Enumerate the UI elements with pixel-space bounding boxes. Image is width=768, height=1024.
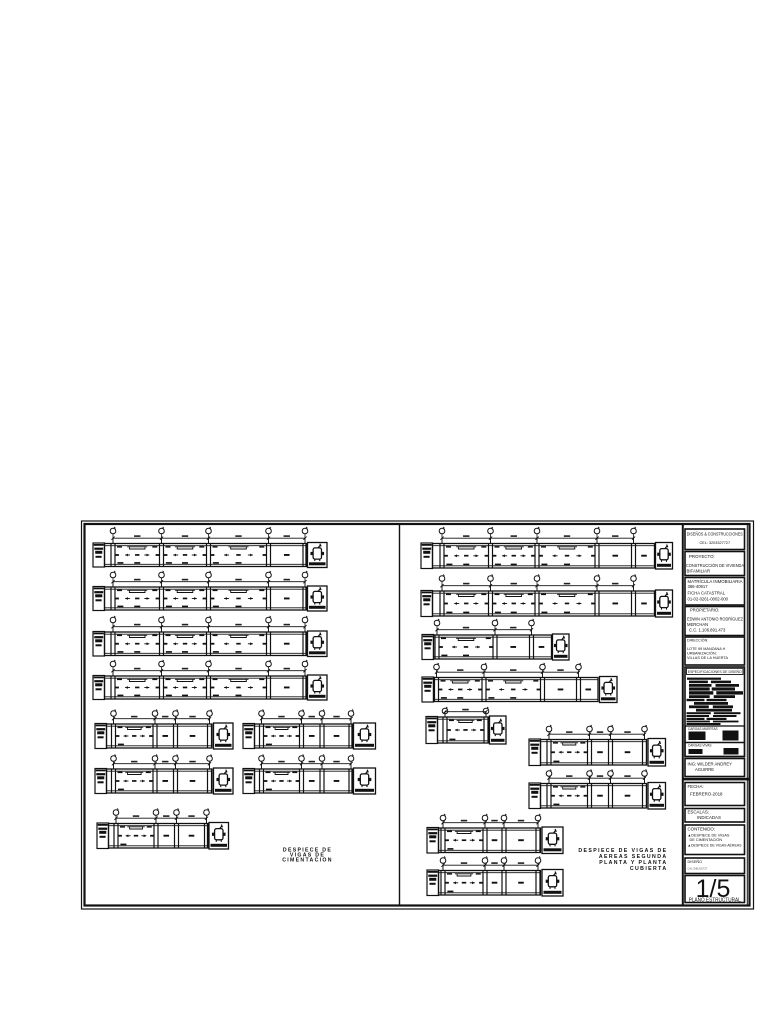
- svg-text:AGUIRRE: AGUIRRE: [695, 767, 714, 772]
- svg-text:▲DESPIECE DE VIGAS: ▲DESPIECE DE VIGAS: [688, 834, 730, 838]
- svg-text:CARGAS MUERTAS: CARGAS MUERTAS: [688, 727, 718, 731]
- svg-text:CIMENTACION: CIMENTACION: [282, 858, 333, 864]
- svg-text:PROYECTO:: PROYECTO:: [689, 554, 715, 559]
- svg-text:C.C. 1.106.891.473: C.C. 1.106.891.473: [689, 628, 726, 633]
- svg-text:DE CIMENTACIÓN: DE CIMENTACIÓN: [690, 837, 723, 842]
- svg-text:CEL: 3203327727: CEL: 3203327727: [699, 541, 730, 545]
- svg-text:EDWIN ANTONIO RODRÍGUEZ: EDWIN ANTONIO RODRÍGUEZ: [687, 617, 743, 622]
- svg-text:URBANIZACIÓN:: URBANIZACIÓN:: [687, 651, 717, 656]
- svg-text:ING: WILDER ANDREY: ING: WILDER ANDREY: [688, 762, 733, 767]
- svg-text:CAL-SIELNO727: CAL-SIELNO727: [688, 867, 708, 871]
- svg-text:FICHA CATASTRAL: FICHA CATASTRAL: [688, 591, 726, 596]
- svg-text:LOTE 99 MANZANA H: LOTE 99 MANZANA H: [687, 647, 726, 651]
- svg-text:MERCHAN: MERCHAN: [687, 622, 708, 627]
- svg-text:ESPECIFICACIONES DE DISEÑO: ESPECIFICACIONES DE DISEÑO: [688, 669, 742, 674]
- svg-text:FEBRERO-2018: FEBRERO-2018: [690, 792, 723, 797]
- svg-text:366-40917: 366-40917: [688, 584, 709, 589]
- svg-text:FECHA:: FECHA:: [688, 784, 704, 789]
- svg-text:DESPIECE DE VIGAS DE: DESPIECE DE VIGAS DE: [578, 848, 667, 854]
- svg-text:01-02-0261-0002-000: 01-02-0261-0002-000: [688, 597, 729, 602]
- svg-text:PROPIETARIO:: PROPIETARIO:: [690, 608, 719, 613]
- svg-text:PLANO ESTRUCTURAL: PLANO ESTRUCTURAL: [689, 898, 741, 904]
- svg-text:▲DESPIECE DE VIGAS AÉREAS: ▲DESPIECE DE VIGAS AÉREAS: [688, 843, 743, 848]
- svg-text:CUBIERTA: CUBIERTA: [630, 866, 668, 872]
- svg-text:VILLAS DE LA HUERTA: VILLAS DE LA HUERTA: [687, 656, 728, 660]
- svg-text:INDICADAS: INDICADAS: [697, 815, 721, 820]
- svg-text:AEREAS SEGUNDA: AEREAS SEGUNDA: [599, 854, 668, 860]
- svg-text:CONTENIDO:: CONTENIDO:: [688, 827, 716, 832]
- svg-text:CARGAS VIVAS: CARGAS VIVAS: [688, 744, 712, 748]
- svg-text:DISEÑOS & CONSTRUCCIONES: DISEÑOS & CONSTRUCCIONES: [687, 532, 743, 537]
- svg-text:ESCALAS:: ESCALAS:: [688, 810, 709, 815]
- svg-text:DIRECCIÓN:: DIRECCIÓN:: [687, 638, 708, 643]
- svg-text:CONSTRUCCIÓN DE VIVIENDA: CONSTRUCCIÓN DE VIVIENDA: [686, 563, 744, 568]
- svg-text:BIFAMILIAR: BIFAMILIAR: [687, 569, 711, 574]
- svg-text:DISEÑO: DISEÑO: [688, 859, 703, 864]
